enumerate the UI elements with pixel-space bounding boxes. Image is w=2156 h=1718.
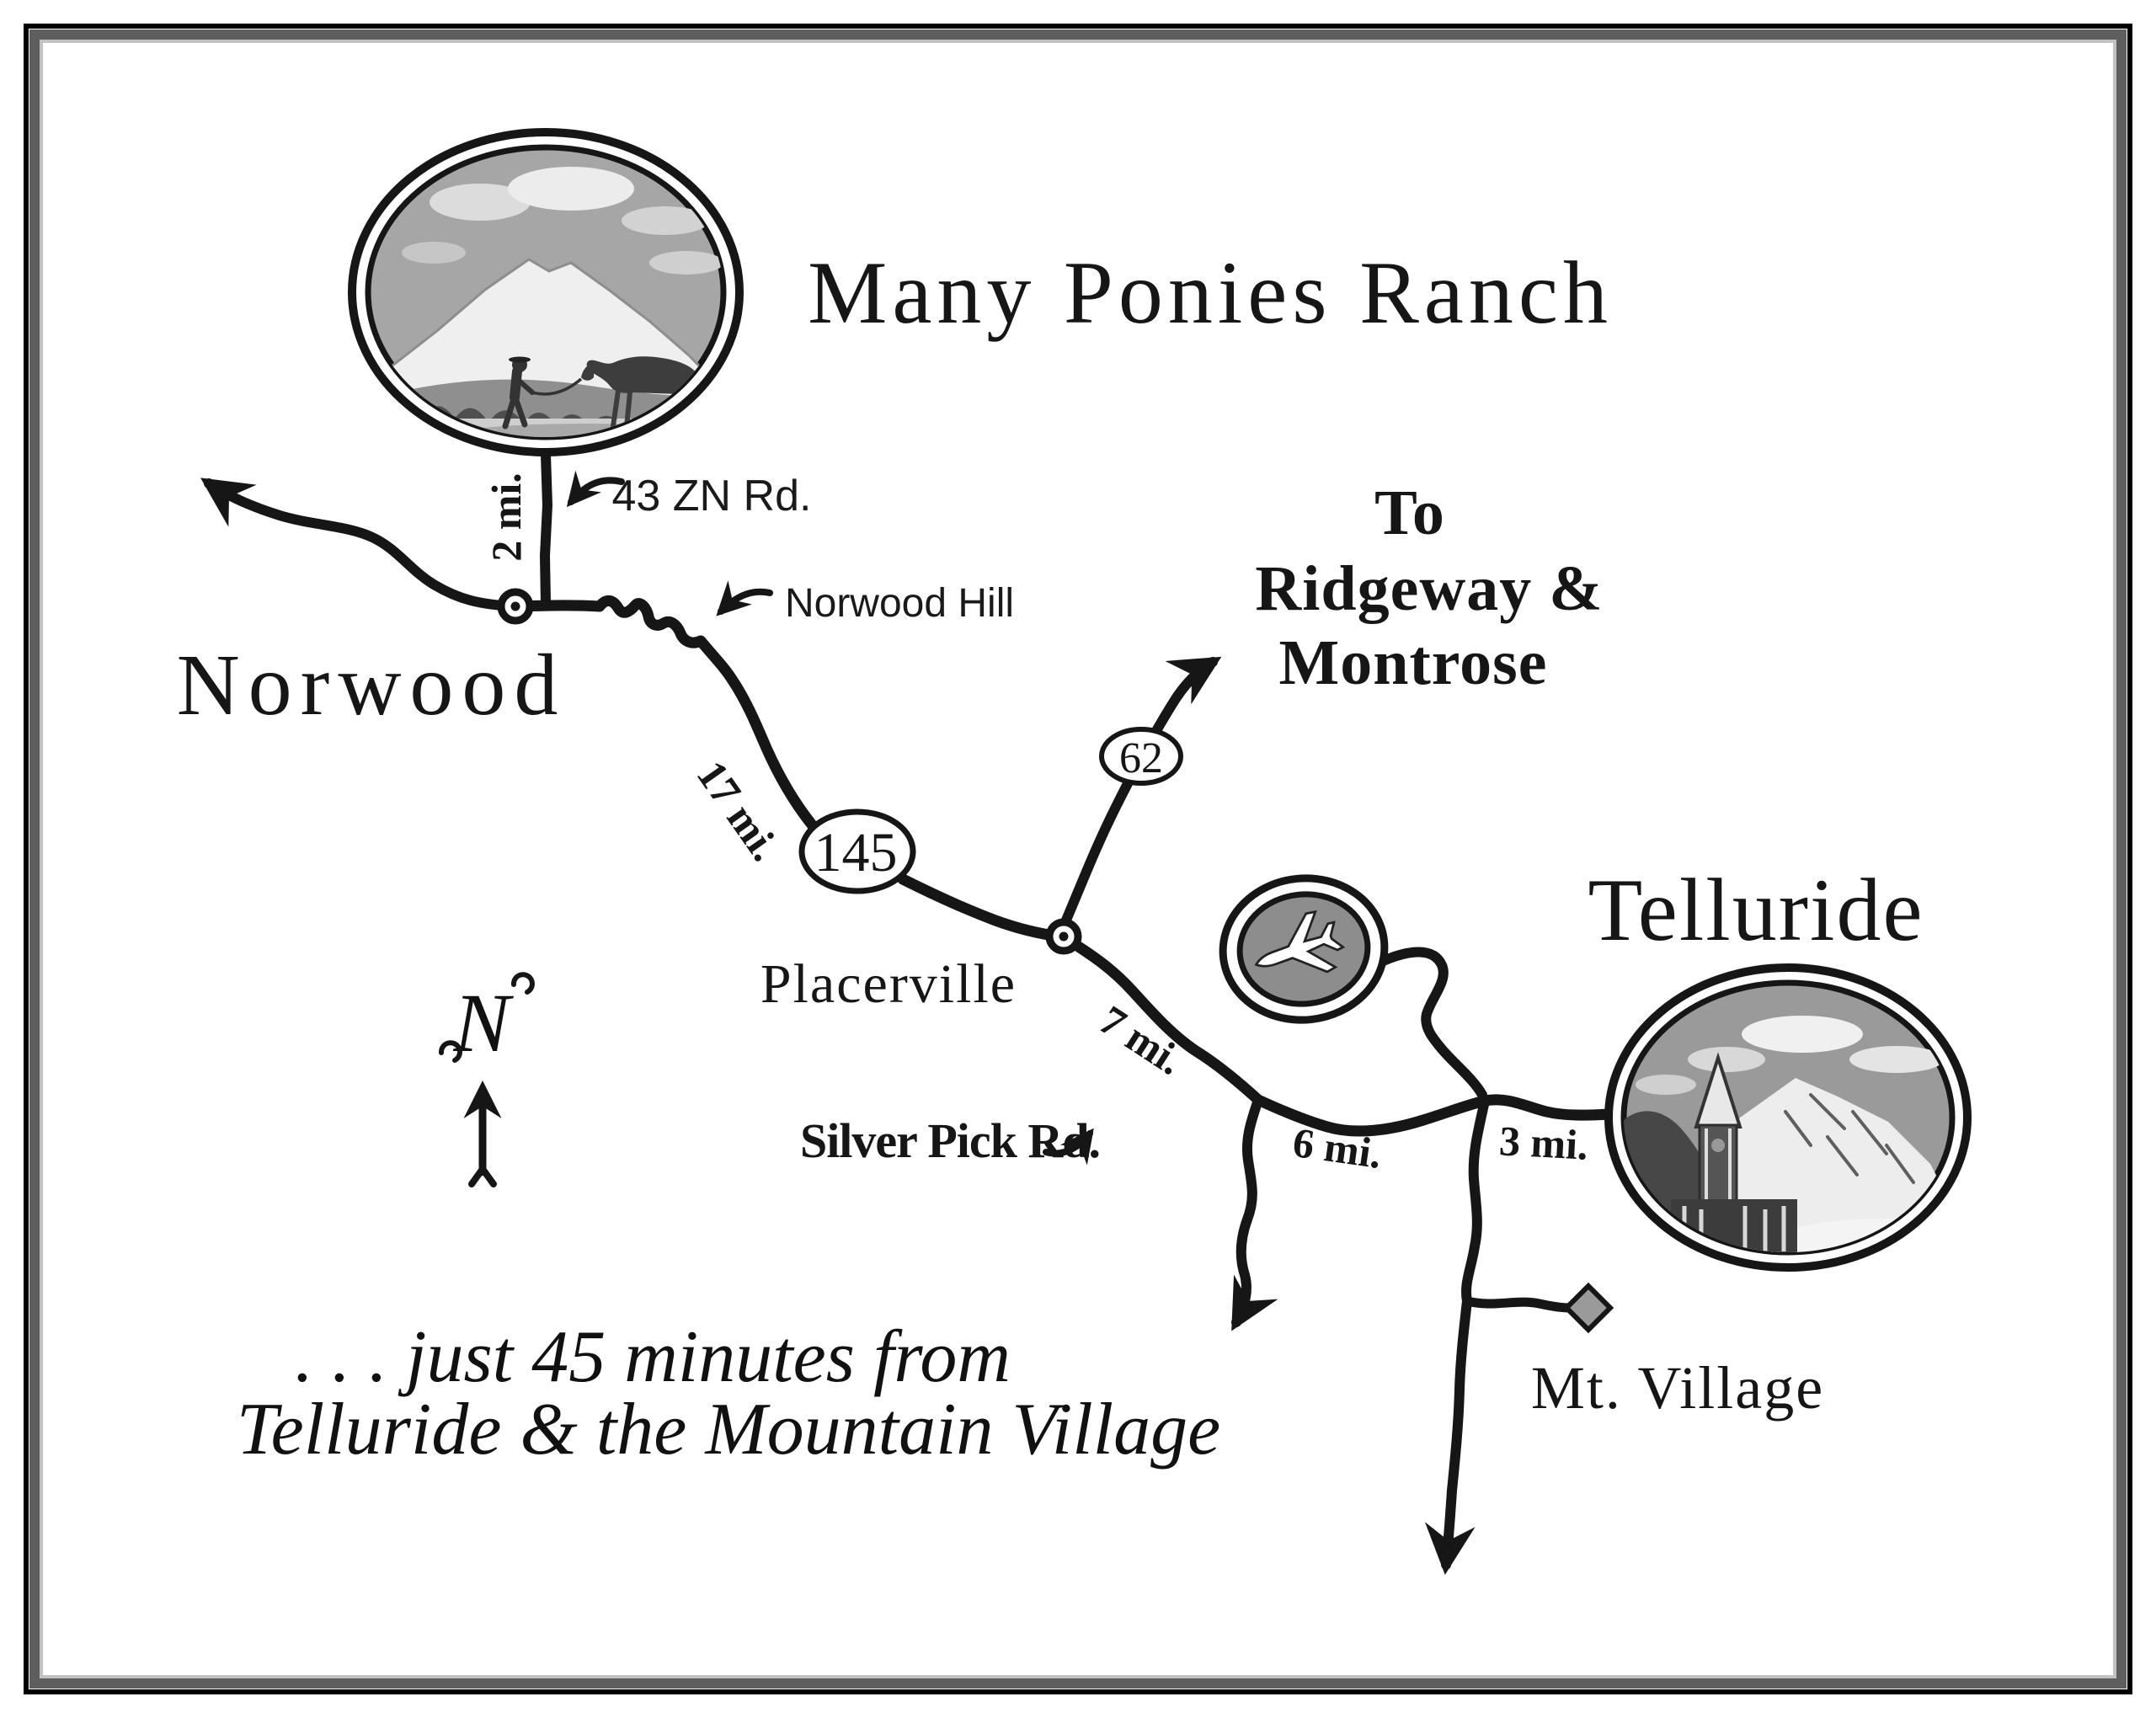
destination-sign: To Ridgeway & Montrose [1255, 478, 1603, 698]
route-shield-62: 62 [1102, 729, 1181, 783]
cloud [1688, 1047, 1765, 1072]
town-marker-placerville [1049, 922, 1078, 951]
distance-7mi: 7 mi. [1091, 996, 1192, 1084]
norwood-hill-callout-arrow-icon [721, 592, 770, 611]
destination-line2: Ridgeway & [1255, 553, 1603, 624]
road-label-norwood-hill: Norwood Hill [785, 581, 1014, 626]
route-shield-145-label: 145 [814, 822, 898, 883]
road-43-zn [545, 455, 547, 603]
tower-clock [1711, 1139, 1725, 1152]
road-airport-access [1381, 952, 1482, 1096]
tagline-line1: . . . just 45 minutes from [295, 1316, 1011, 1398]
town-label-telluride: Telluride [1588, 861, 1924, 959]
cloud [1636, 1075, 1696, 1095]
ranch-vignette [352, 132, 741, 455]
map-svg: 145 62 N Many Ponies Ranch Norwood Place… [0, 0, 2156, 1718]
road-62 [1063, 662, 1213, 928]
distance-2mi: 2 mi. [483, 472, 530, 562]
road-to-mt-village-south [1446, 1101, 1485, 1565]
road-silver-pick [1236, 1100, 1258, 1322]
town-label-mt-village: Mt. Village [1531, 1354, 1824, 1422]
destination-line3: Montrose [1279, 627, 1548, 698]
north-label: N [453, 976, 515, 1070]
cloud [649, 251, 723, 275]
tagline: . . . just 45 minutes from Telluride & t… [237, 1316, 1220, 1470]
road-label-silver-pick: Silver Pick Rd. [800, 1113, 1100, 1168]
north-compass: N [441, 974, 532, 1184]
mt-village-diamond-marker [1566, 1286, 1610, 1330]
road-mt-village-spur [1467, 1301, 1570, 1308]
town-label-placerville: Placerville [760, 953, 1017, 1015]
compass-curl-icon [514, 974, 532, 992]
map-title: Many Ponies Ranch [808, 243, 1613, 342]
telluride-vignette [1609, 968, 1967, 1267]
cloud [402, 242, 466, 264]
road-145-norwood-to-placerville [515, 600, 1059, 936]
route-shield-145: 145 [802, 812, 913, 891]
route-shield-62-label: 62 [1119, 734, 1163, 782]
rancher-hat [509, 357, 531, 363]
town-label-norwood: Norwood [177, 637, 567, 734]
town-marker-norwood [501, 592, 530, 621]
cloud [508, 167, 634, 211]
cloud [1849, 1046, 1944, 1073]
road-label-43-zn-rd: 43 ZN Rd. [612, 472, 812, 520]
north-arrow-fletching [472, 1169, 494, 1184]
airport-icon [1216, 870, 1392, 1027]
destination-line1: To [1374, 478, 1445, 548]
distance-3mi: 3 mi. [1498, 1117, 1589, 1168]
cloud [1742, 1016, 1863, 1053]
ranch-direction-map: 145 62 N Many Ponies Ranch Norwood Place… [0, 0, 2156, 1718]
tagline-line2: Telluride & the Mountain Village [237, 1389, 1220, 1470]
road-west-out-of-norwood [209, 483, 515, 606]
